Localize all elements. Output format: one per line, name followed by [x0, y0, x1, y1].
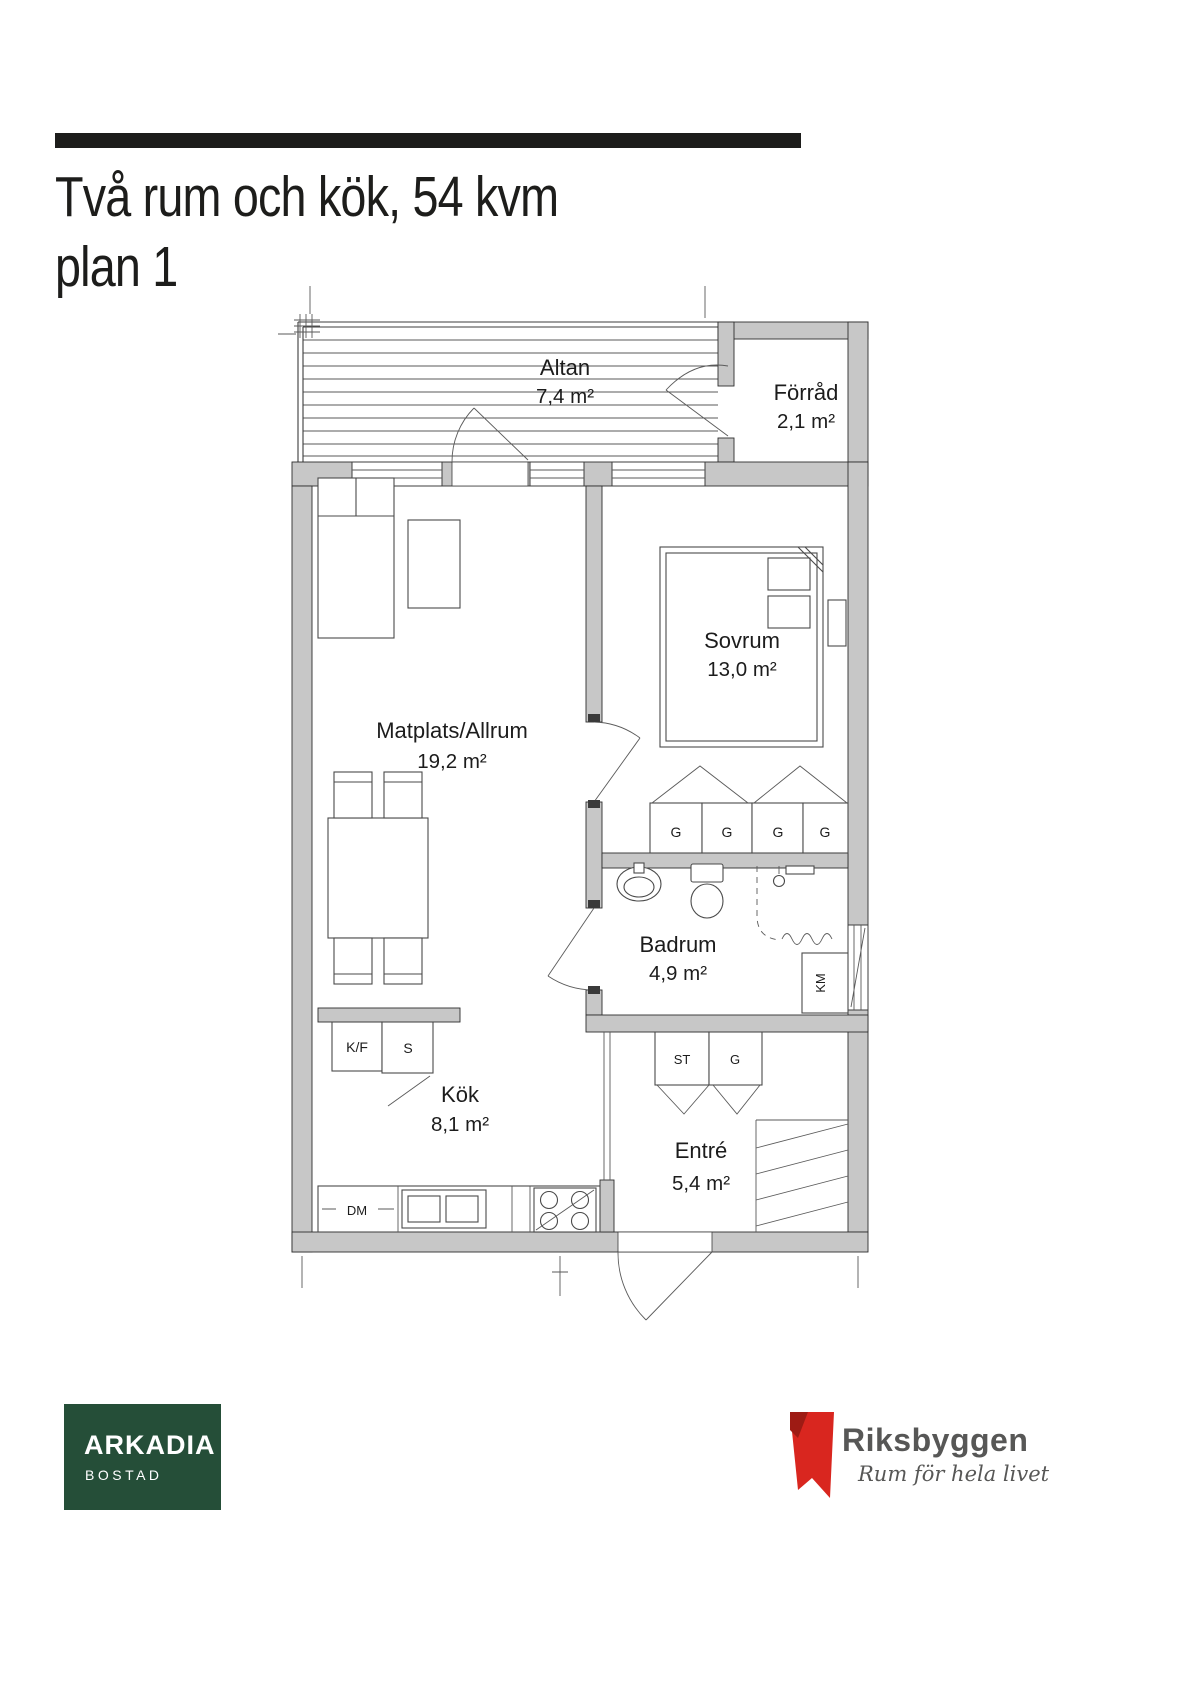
- svg-text:ST: ST: [674, 1052, 691, 1067]
- sink-icon: [617, 863, 661, 901]
- coffee-table-icon: [408, 520, 460, 608]
- kitchen-sink-icon: [402, 1190, 486, 1228]
- shower-icon: [757, 866, 832, 945]
- room-area-kok: 8,1 m²: [431, 1113, 489, 1136]
- wardrobe-label: G: [820, 824, 831, 840]
- altan-door-opening: [452, 462, 528, 486]
- arkadia-logo: ARKADIA BOSTAD: [64, 1404, 221, 1510]
- window: [848, 925, 868, 1010]
- door-swing-bedroom: [594, 722, 640, 802]
- leader-line: [388, 1076, 430, 1106]
- room-area-altan: 7,4 m²: [536, 385, 594, 408]
- room-area-badrum: 4,9 m²: [649, 962, 707, 985]
- svg-text:S: S: [403, 1040, 412, 1056]
- fridge-freezer: K/F: [332, 1022, 382, 1071]
- room-area-allrum: 19,2 m²: [417, 750, 487, 773]
- washing-machine: KM: [802, 953, 848, 1013]
- entrance-door-opening: [618, 1232, 712, 1252]
- nightstand-icon: [828, 600, 846, 646]
- room-area-sovrum: 13,0 m²: [707, 658, 777, 681]
- hall-cabinet: ST: [655, 1032, 709, 1085]
- altan-deck: [278, 286, 718, 462]
- room-label-forrad: Förråd: [774, 380, 839, 405]
- sofa-icon: [318, 478, 394, 638]
- room-area-entre: 5,4 m²: [672, 1172, 730, 1195]
- room-label-sovrum: Sovrum: [704, 628, 780, 653]
- wardrobe-label: G: [671, 824, 682, 840]
- toilet-icon: [691, 864, 723, 918]
- wardrobe-label: G: [722, 824, 733, 840]
- stairs-hatch: [756, 1120, 848, 1232]
- room-label-badrum: Badrum: [639, 932, 716, 957]
- pantry-cabinet: S: [382, 1022, 433, 1073]
- svg-text:KM: KM: [813, 973, 828, 993]
- room-label-entre: Entré: [675, 1138, 728, 1163]
- riksbyggen-logo-name: Riksbyggen: [842, 1422, 1028, 1459]
- door-swing-entrance: [618, 1252, 712, 1320]
- kitchen-hall-partition: [604, 1032, 610, 1180]
- stove-icon: [534, 1188, 596, 1232]
- room-label-kok: Kök: [441, 1082, 480, 1107]
- wardrobe-label: G: [773, 824, 784, 840]
- riksbyggen-tagline: Rum för hela livet: [858, 1462, 1049, 1486]
- svg-text:DM: DM: [347, 1203, 367, 1218]
- room-area-forrad: 2,1 m²: [777, 410, 835, 433]
- closet-door-lines: [657, 1085, 760, 1114]
- tick-mark: [302, 1256, 858, 1296]
- kitchen-counter: DM: [318, 1186, 600, 1232]
- window: [612, 462, 705, 486]
- room-label-altan: Altan: [540, 355, 590, 380]
- arkadia-logo-name: ARKADIA: [84, 1430, 221, 1461]
- svg-text:G: G: [730, 1052, 740, 1067]
- window: [530, 462, 584, 486]
- riksbyggen-logo-icon: [786, 1408, 838, 1504]
- room-label-allrum: Matplats/Allrum: [376, 718, 528, 743]
- svg-text:K/F: K/F: [346, 1039, 368, 1055]
- hall-wardrobe: G: [709, 1032, 762, 1085]
- dining-table-icon: [328, 818, 428, 938]
- arkadia-logo-subtitle: BOSTAD: [85, 1467, 221, 1483]
- door-swing-bathroom: [548, 908, 594, 990]
- door-swing-altan: [452, 408, 528, 462]
